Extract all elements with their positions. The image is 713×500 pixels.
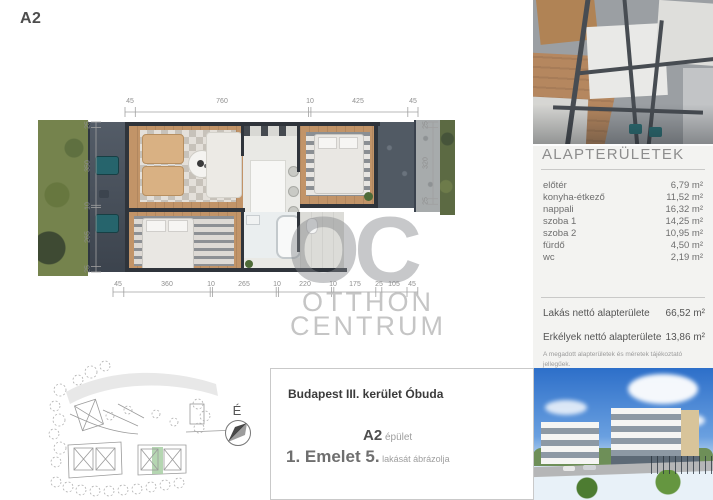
right-terrace (378, 122, 416, 208)
wall (125, 122, 129, 272)
room-area: 11,52 m² (666, 192, 703, 203)
building-id: A2 (363, 427, 382, 444)
sofa (142, 134, 184, 164)
dim-label: 320 (423, 157, 430, 169)
room-label: szoba 1 (543, 216, 576, 227)
dim-label: 425 (352, 98, 364, 105)
room-row: wc2,19 m² (543, 252, 703, 263)
dim-label: 10 (85, 202, 92, 210)
areas-title: ALAPTERÜLETEK (542, 146, 684, 163)
address: Budapest III. kerület Óbuda (288, 387, 443, 401)
unit-label: A2 (20, 10, 41, 28)
building-left (541, 422, 599, 464)
kitchen-counter (243, 126, 300, 136)
watermark-centrum: CENTRUM (290, 311, 446, 342)
room-label: fürdő (543, 240, 565, 251)
lawn (533, 470, 713, 500)
room-label: előtér (543, 180, 567, 191)
watermark-oc: OC (287, 203, 416, 297)
north-compass-icon: É (220, 402, 256, 450)
wall (125, 122, 380, 126)
sidebar: ALAPTERÜLETEK előtér6,79 m² konyha-étkez… (533, 0, 713, 500)
wall (125, 208, 245, 212)
garden-grass (38, 120, 88, 276)
plant (245, 260, 253, 268)
render-shadow (533, 104, 713, 144)
pillow (318, 137, 337, 149)
dim-label: 10 (273, 281, 281, 288)
site-plan (48, 352, 240, 498)
render-room (655, 0, 713, 66)
total-label: Lakás nettó alapterülete (543, 308, 650, 319)
room-area: 16,32 m² (666, 204, 704, 215)
room-label: nappali (543, 204, 574, 215)
chaise (206, 132, 242, 198)
room-area: 14,25 m² (666, 216, 704, 227)
dim-label: 45 (409, 98, 417, 105)
room-row: szoba 210,95 m² (543, 228, 703, 239)
dim-label: 25 (85, 265, 92, 273)
disclaimer-line1: A megadott alapterületek és méretek tájé… (543, 351, 682, 368)
dim-label: 45 (126, 98, 134, 105)
room-label: szoba 2 (543, 228, 576, 239)
pillow (146, 220, 166, 232)
divider (541, 169, 705, 170)
garden-trees (440, 120, 455, 215)
building-line: A2 épület (363, 427, 412, 445)
table-decor (197, 160, 204, 167)
lounge-chair (95, 214, 119, 233)
dim-label: 45 (114, 281, 122, 288)
terrace-railing (88, 122, 90, 272)
room-label: wc (543, 252, 555, 263)
room-row: előtér6,79 m² (543, 180, 703, 191)
building-exterior-render (533, 368, 713, 500)
total-row: Erkélyek nettó alapterülete13,86 m² (543, 332, 705, 343)
wall (241, 122, 244, 156)
dim-label: 25 (85, 121, 92, 129)
room-area: 4,50 m² (671, 240, 703, 251)
floorplan-datasheet: A2 (0, 0, 713, 500)
dim-label: 10 (306, 98, 314, 105)
cloud (628, 374, 698, 404)
wall (374, 122, 378, 208)
kitchen-island (250, 160, 286, 220)
total-label: Erkélyek nettó alapterülete (543, 332, 661, 343)
divider (541, 297, 705, 298)
room-row: nappali16,32 m² (543, 204, 703, 215)
dim-label: 350 (85, 160, 92, 172)
floor-suffix: lakását ábrázolja (380, 454, 450, 464)
dim-label: 25 (423, 121, 430, 129)
building-axonometric-render (533, 0, 713, 146)
sink (246, 215, 260, 225)
dim-label: 10 (207, 281, 215, 288)
fence (651, 456, 713, 474)
sofa (142, 166, 184, 196)
floor-id: 1. Emelet 5. (286, 447, 380, 466)
total-value: 13,86 m² (666, 332, 705, 343)
wall (241, 212, 244, 272)
dim-label: 265 (238, 281, 250, 288)
room-area: 10,95 m² (666, 228, 704, 239)
total-value: 66,52 m² (666, 308, 705, 319)
terrace-table (99, 190, 109, 198)
room-row: fürdő4,50 m² (543, 240, 703, 251)
lounge-chair (95, 156, 119, 175)
wall (297, 122, 300, 172)
car (563, 466, 575, 471)
cloud (545, 400, 587, 415)
pillow (339, 137, 358, 149)
room-label: konyha-étkező (543, 192, 605, 203)
floor-line: 1. Emelet 5. lakását ábrázolja (286, 447, 450, 467)
pillow (168, 220, 188, 232)
room-row: szoba 114,25 m² (543, 216, 703, 227)
building-suffix: épület (382, 432, 412, 443)
total-row: Lakás nettó alapterülete66,52 m² (543, 308, 705, 319)
room-row: konyha-étkező11,52 m² (543, 192, 703, 203)
room-area: 6,79 m² (671, 180, 703, 191)
bar-stool (288, 186, 299, 197)
north-label: É (233, 403, 242, 418)
dim-label: 265 (85, 231, 92, 243)
dim-label: 760 (216, 98, 228, 105)
info-box: Budapest III. kerület Óbuda A2 épület 1.… (270, 368, 534, 500)
dim-label: 25 (423, 197, 430, 205)
car (583, 465, 596, 470)
room-area: 2,19 m² (671, 252, 703, 263)
dim-label: 360 (161, 281, 173, 288)
